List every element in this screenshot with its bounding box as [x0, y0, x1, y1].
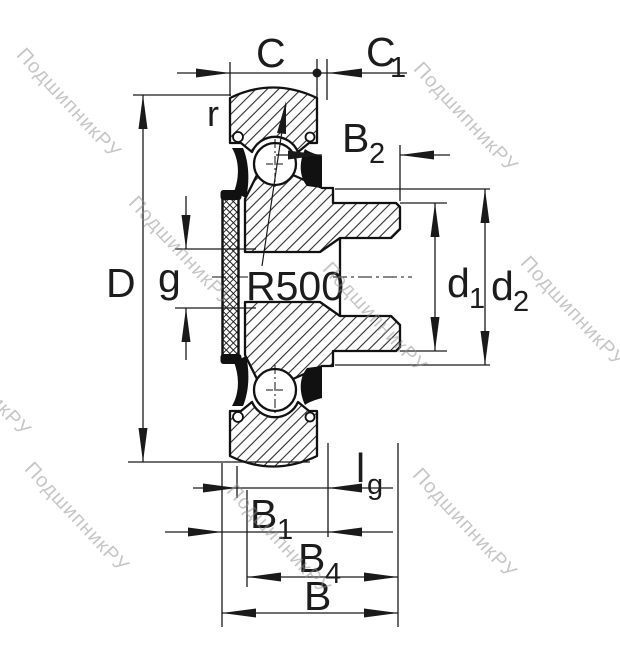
dim-label-B: B: [304, 573, 331, 619]
dim-label-d2-sub: 2: [513, 286, 529, 318]
bearing-drawing-page: C C 1 r B 2 D g R500 d 1 d 2 l g B 1 B 4…: [0, 0, 620, 660]
dim-label-r: r: [207, 93, 219, 134]
dim-label-B2-sub: 2: [369, 138, 385, 170]
dim-label-d1-sub: 1: [469, 283, 485, 315]
dim-label-C1-sub: 1: [390, 52, 406, 84]
dim-label-lg: l: [356, 445, 365, 491]
dim-label-R500: R500: [246, 263, 344, 309]
dim-label-B1-sub: 1: [277, 514, 293, 546]
dim-label-d1: d: [447, 260, 470, 306]
dim-label-D: D: [106, 260, 136, 306]
bearing-technical-drawing: C C 1 r B 2 D g R500 d 1 d 2 l g B 1 B 4…: [0, 0, 620, 660]
dim-label-d2: d: [491, 263, 514, 309]
dim-label-g: g: [158, 255, 181, 301]
dim-label-B2: B: [342, 115, 369, 161]
dim-label-lg-sub: g: [367, 469, 383, 501]
dim-label-C: C: [256, 30, 286, 76]
dim-label-B1: B: [250, 491, 277, 537]
